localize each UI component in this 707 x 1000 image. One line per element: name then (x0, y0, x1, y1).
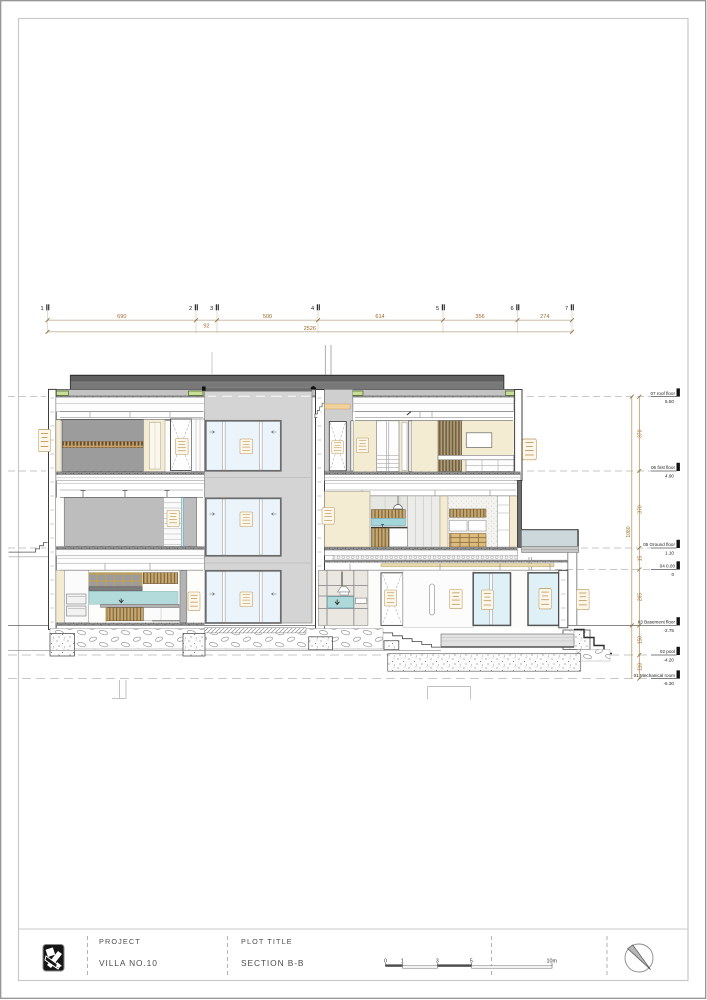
svg-text:15: 15 (638, 556, 644, 562)
svg-text:7: 7 (565, 306, 568, 312)
svg-text:1: 1 (41, 306, 44, 312)
svg-text:92: 92 (203, 323, 209, 329)
svg-text:614: 614 (375, 314, 384, 320)
svg-text:500: 500 (263, 314, 272, 320)
svg-text:04 0.00: 04 0.00 (660, 564, 676, 569)
svg-text:1.10: 1.10 (665, 551, 674, 556)
svg-text:370: 370 (638, 505, 644, 514)
svg-text:05 Ground floor: 05 Ground floor (643, 542, 675, 547)
svg-text:06 first floor: 06 first floor (651, 465, 675, 470)
svg-text:5: 5 (436, 306, 439, 312)
svg-text:-6.30: -6.30 (664, 681, 675, 686)
svg-text:356: 356 (475, 314, 484, 320)
svg-text:2: 2 (189, 306, 192, 312)
svg-text:02 pool: 02 pool (660, 649, 675, 654)
svg-text:03 Basement floor: 03 Basement floor (638, 620, 676, 625)
svg-text:01 Mechanical room: 01 Mechanical room (634, 673, 676, 678)
svg-text:274: 274 (540, 314, 549, 320)
svg-text:370: 370 (638, 429, 644, 438)
svg-text:0: 0 (671, 572, 674, 577)
svg-text:-4.20: -4.20 (664, 658, 675, 663)
svg-text:150: 150 (638, 636, 644, 645)
svg-text:PROJECT: PROJECT (99, 937, 141, 946)
svg-text:265: 265 (638, 593, 644, 602)
svg-text:-2.75: -2.75 (664, 628, 675, 633)
svg-text:4: 4 (311, 306, 314, 312)
svg-text:2526: 2526 (304, 326, 316, 332)
svg-text:3: 3 (210, 306, 213, 312)
svg-text:110: 110 (638, 663, 644, 671)
svg-text:6.50: 6.50 (665, 399, 674, 404)
svg-text:07 roof floor: 07 roof floor (650, 391, 675, 396)
svg-text:690: 690 (117, 314, 126, 320)
svg-text:SECTION B-B: SECTION B-B (241, 958, 304, 968)
svg-text:VILLA NO.10: VILLA NO.10 (99, 958, 158, 968)
svg-text:PLOT TITLE: PLOT TITLE (241, 937, 293, 946)
svg-text:1080: 1080 (626, 526, 632, 537)
svg-text:4.90: 4.90 (665, 474, 674, 479)
svg-text:6: 6 (511, 306, 514, 312)
